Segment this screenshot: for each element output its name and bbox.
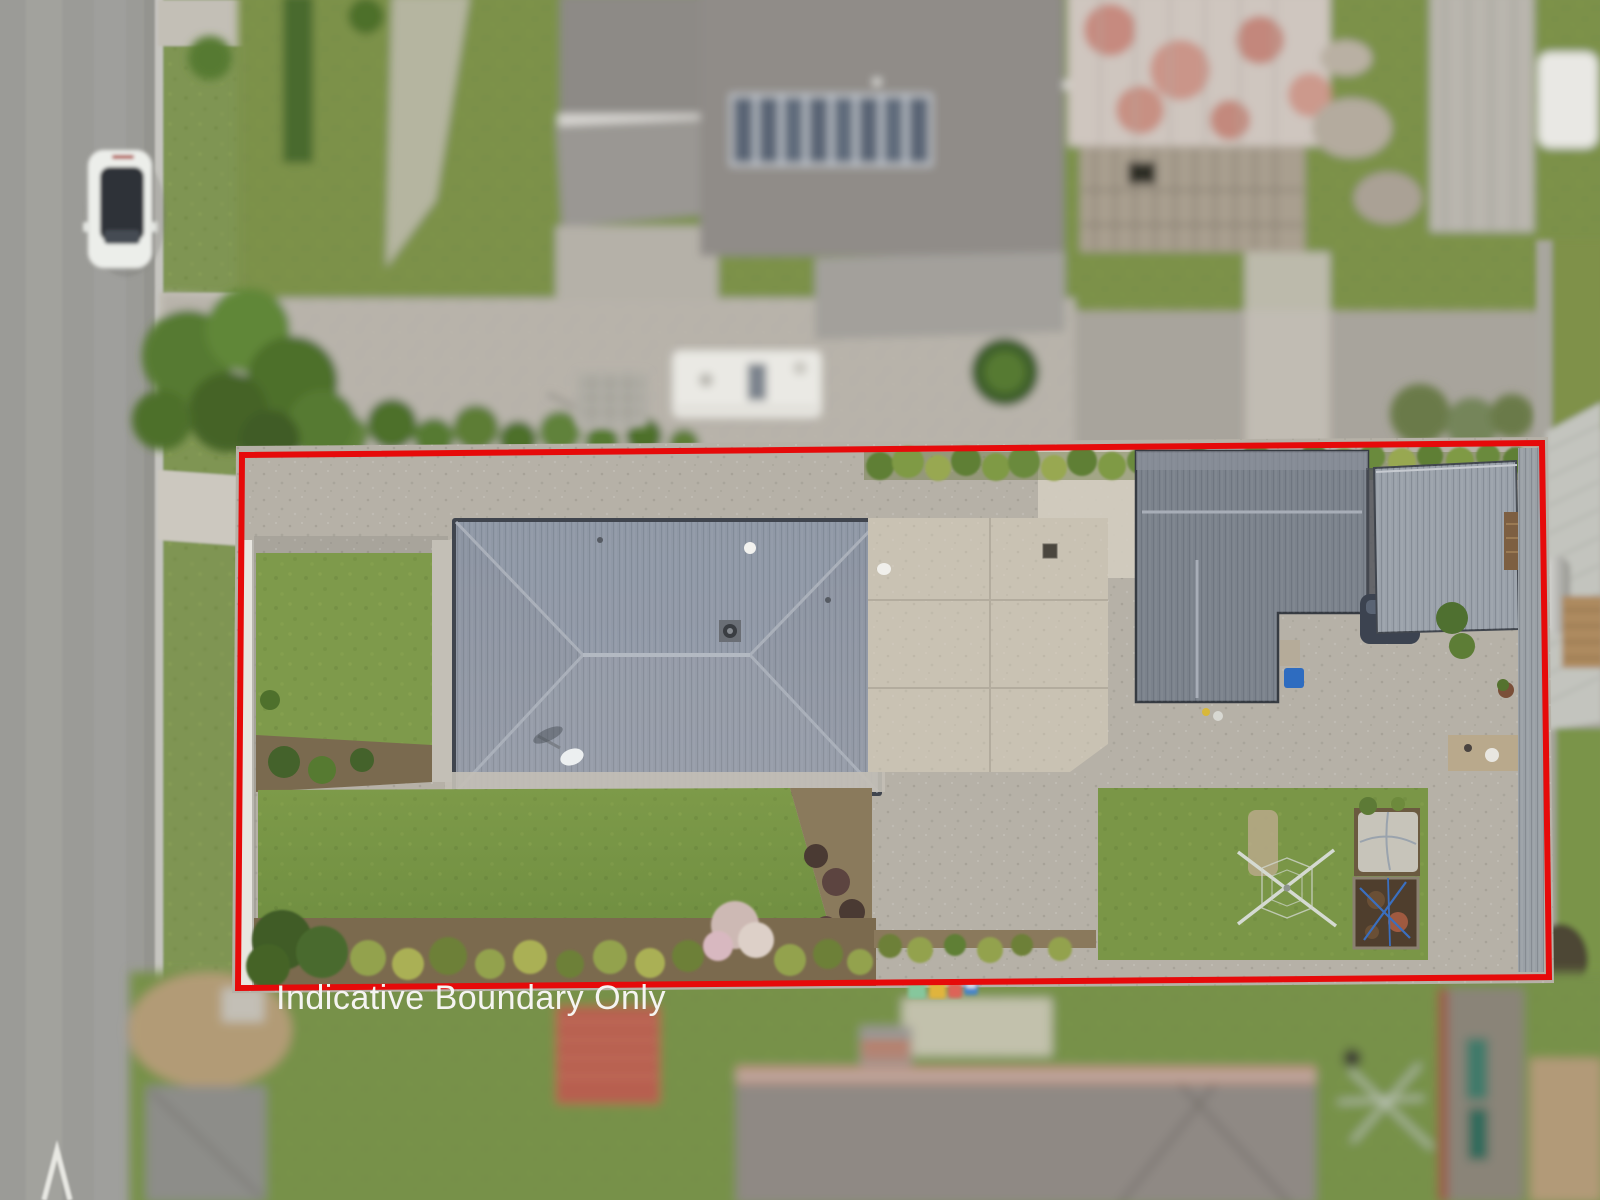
framing-opening <box>1128 162 1156 184</box>
car-taillight <box>112 155 134 159</box>
caption-text: Indicative Boundary Only <box>276 979 666 1018</box>
bench-item <box>1464 744 1472 752</box>
path-remnant <box>222 988 264 1022</box>
caravan-vent <box>793 361 807 375</box>
dark-shrub <box>804 844 828 868</box>
solar-panel-array <box>730 94 932 166</box>
shrub <box>268 746 300 778</box>
dwelling-north-edge <box>1136 451 1368 470</box>
roof-vent <box>825 597 831 603</box>
soil-mound <box>1367 891 1385 909</box>
solar-panel <box>758 97 779 163</box>
garden-debris <box>1343 1049 1361 1067</box>
subject-property <box>232 437 1554 993</box>
main-house <box>452 518 882 796</box>
solar-panel <box>858 97 879 163</box>
cage-trailer-body <box>576 372 648 428</box>
pad-texture <box>868 518 1108 772</box>
shrub <box>308 756 336 784</box>
bottom-right-dirt <box>1530 1058 1600 1200</box>
vehicle-crossing <box>158 470 243 546</box>
neighbour-patio <box>556 226 718 302</box>
brick-edge <box>1438 988 1448 1200</box>
top-neighbour-property <box>132 0 1600 470</box>
solar-panel <box>808 97 829 163</box>
soil-mound <box>1388 912 1408 932</box>
solar-panel <box>833 97 854 163</box>
car-mirror <box>150 222 157 232</box>
car-mirror <box>83 222 90 232</box>
white-object <box>877 563 891 575</box>
car-windscreen <box>104 230 140 244</box>
neighbour-path <box>1245 252 1330 448</box>
small-item <box>1213 711 1223 721</box>
box-plant <box>1359 797 1377 815</box>
neighbour-roof <box>560 0 720 118</box>
bottom-roof-texture <box>736 1084 1316 1200</box>
teal-panel <box>1468 1108 1488 1160</box>
stone-wall-texture <box>254 536 448 553</box>
worn-path <box>1248 810 1278 876</box>
soil-garden-box <box>1354 878 1418 948</box>
aerial-scene <box>0 0 1600 1200</box>
pot-plant <box>1497 679 1509 691</box>
small-tree <box>188 36 232 80</box>
concrete-block <box>1280 640 1300 666</box>
solar-panel <box>908 97 929 163</box>
shrub <box>260 690 280 710</box>
shrub <box>350 748 374 772</box>
aerial-photo: Indicative Boundary Only <box>0 0 1600 1200</box>
roof-vent <box>597 537 603 543</box>
red-bin <box>948 983 962 998</box>
cabbage-tree-crown <box>985 352 1025 392</box>
yellow-item <box>1202 708 1210 716</box>
roof-vent <box>873 78 881 86</box>
flue-cap <box>727 628 733 634</box>
bench-item <box>1485 748 1499 762</box>
clothesline-pole <box>1284 885 1291 892</box>
solar-panel <box>733 97 754 163</box>
caravan-vent <box>699 373 713 387</box>
netted-garden-box <box>1354 797 1420 876</box>
shrub <box>1449 633 1475 659</box>
solar-panel <box>883 97 904 163</box>
road-wear-band <box>26 0 62 1200</box>
lean-to-roof <box>815 252 1065 340</box>
solar-panel <box>783 97 804 163</box>
roof-vent-white <box>744 542 756 554</box>
stored-caravan <box>1538 52 1598 148</box>
hedge-row <box>283 0 313 163</box>
box-plant <box>1391 797 1405 811</box>
chimney-band <box>862 1042 910 1049</box>
framed-structure <box>1080 146 1305 252</box>
drain-cover <box>1043 544 1057 558</box>
blue-bucket <box>1284 668 1304 688</box>
teal-panel <box>1466 1038 1488 1100</box>
chimney-band <box>862 1054 910 1059</box>
dark-shrub <box>822 868 850 896</box>
shrub <box>1436 602 1468 634</box>
right-lawn-upper <box>1552 240 1600 430</box>
car-glass-roof <box>100 167 144 241</box>
patio-slab <box>902 998 1052 1056</box>
front-lawn-texture <box>256 553 432 749</box>
